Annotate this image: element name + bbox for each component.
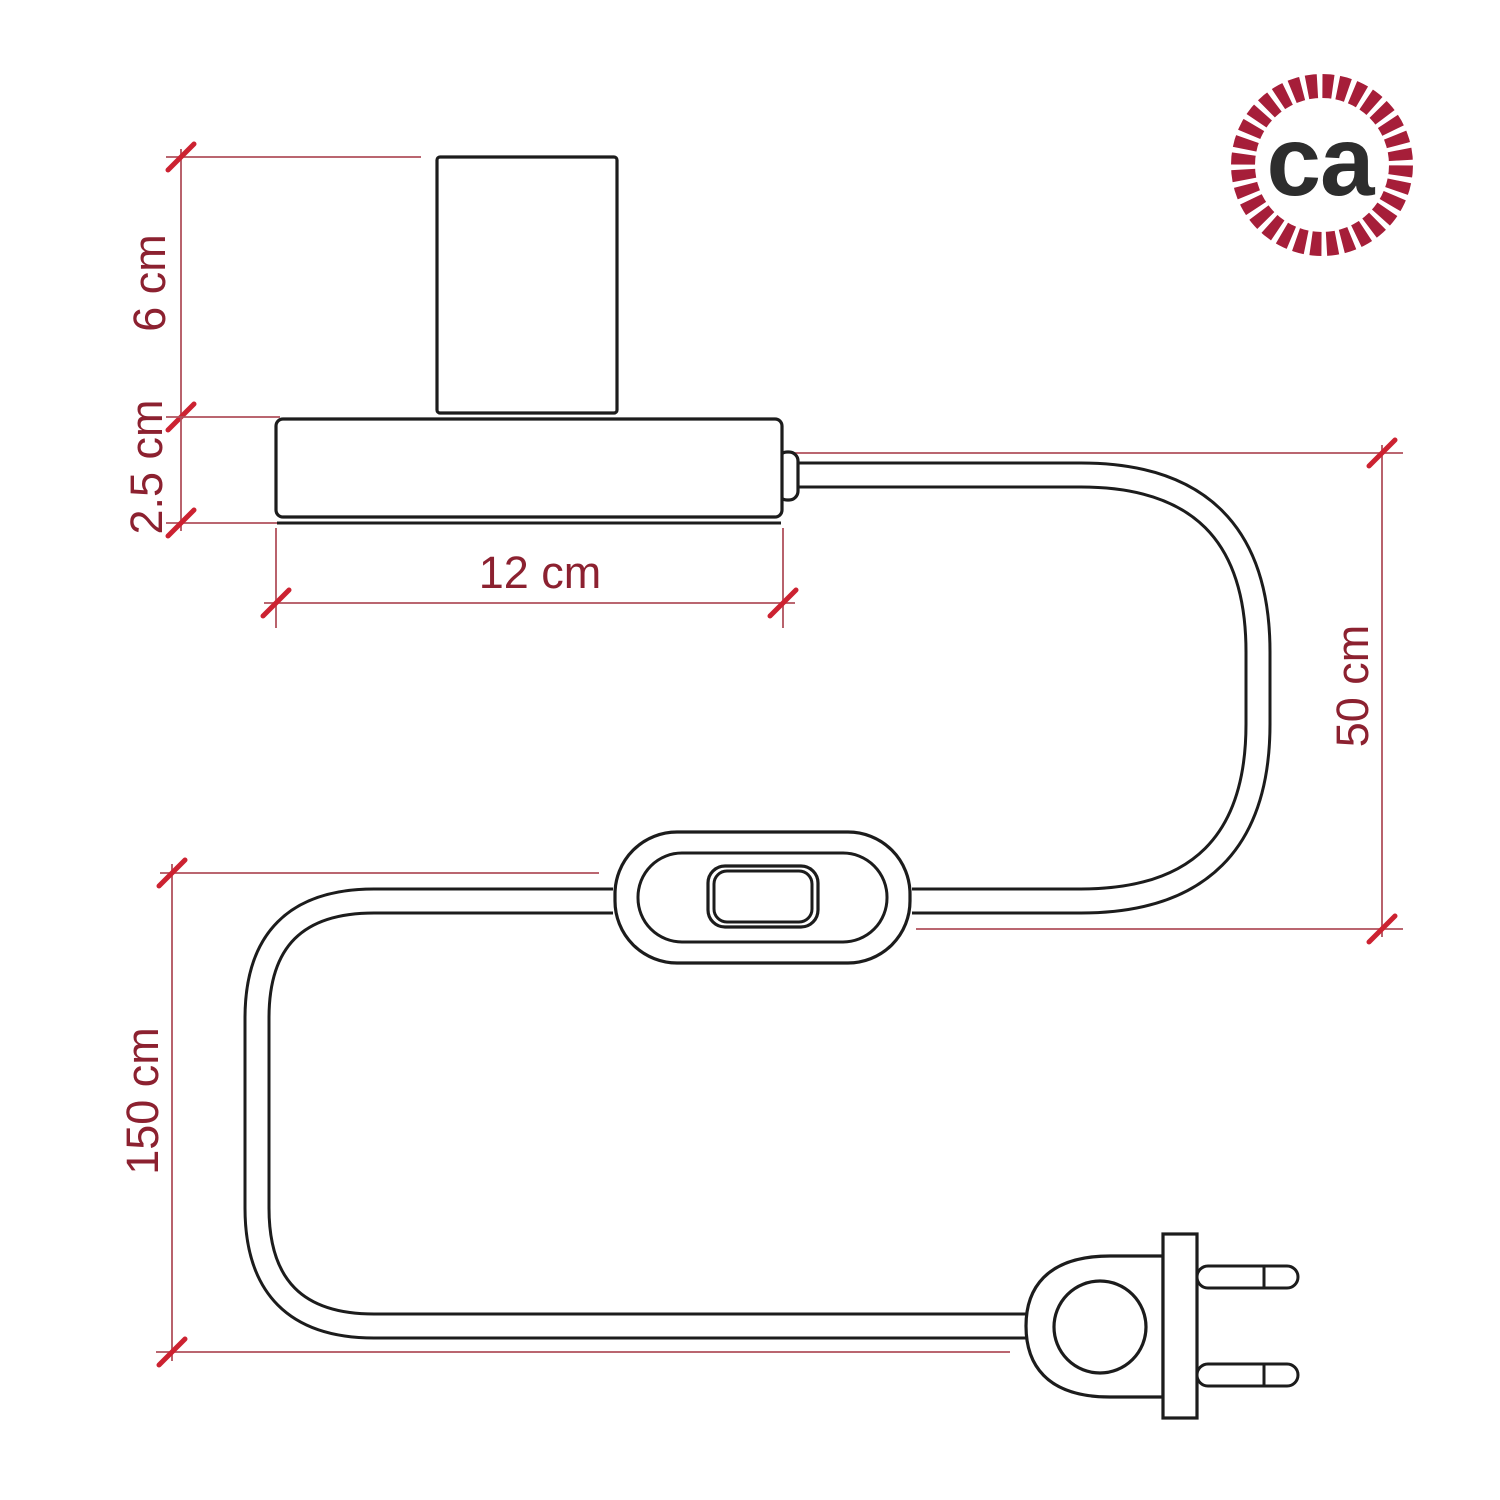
plug-face-plate xyxy=(1163,1234,1197,1418)
dim-label-socket-height: 6 cm xyxy=(124,234,175,332)
lamp-dimension-diagram-page: 6 cm 2.5 cm 12 cm 50 cm xyxy=(0,0,1500,1500)
logo-text: ca xyxy=(1266,106,1376,216)
socket-body xyxy=(437,157,617,413)
dim-label-base-height: 2.5 cm xyxy=(121,399,172,534)
dim-label-cable-lower: 150 cm xyxy=(117,1027,168,1175)
plug-pin-bottom xyxy=(1197,1364,1298,1386)
plug-pin-top xyxy=(1197,1266,1298,1288)
inline-switch xyxy=(615,832,910,963)
plug-body xyxy=(1026,1256,1163,1397)
switch-button xyxy=(708,866,818,927)
dim-label-cable-upper: 50 cm xyxy=(1327,625,1378,748)
dim-label-base-width: 12 cm xyxy=(479,547,602,598)
base-body xyxy=(276,419,782,517)
lamp-base xyxy=(276,419,782,523)
diagram-canvas: 6 cm 2.5 cm 12 cm 50 cm xyxy=(0,0,1500,1500)
brand-logo: ca xyxy=(1233,76,1411,254)
